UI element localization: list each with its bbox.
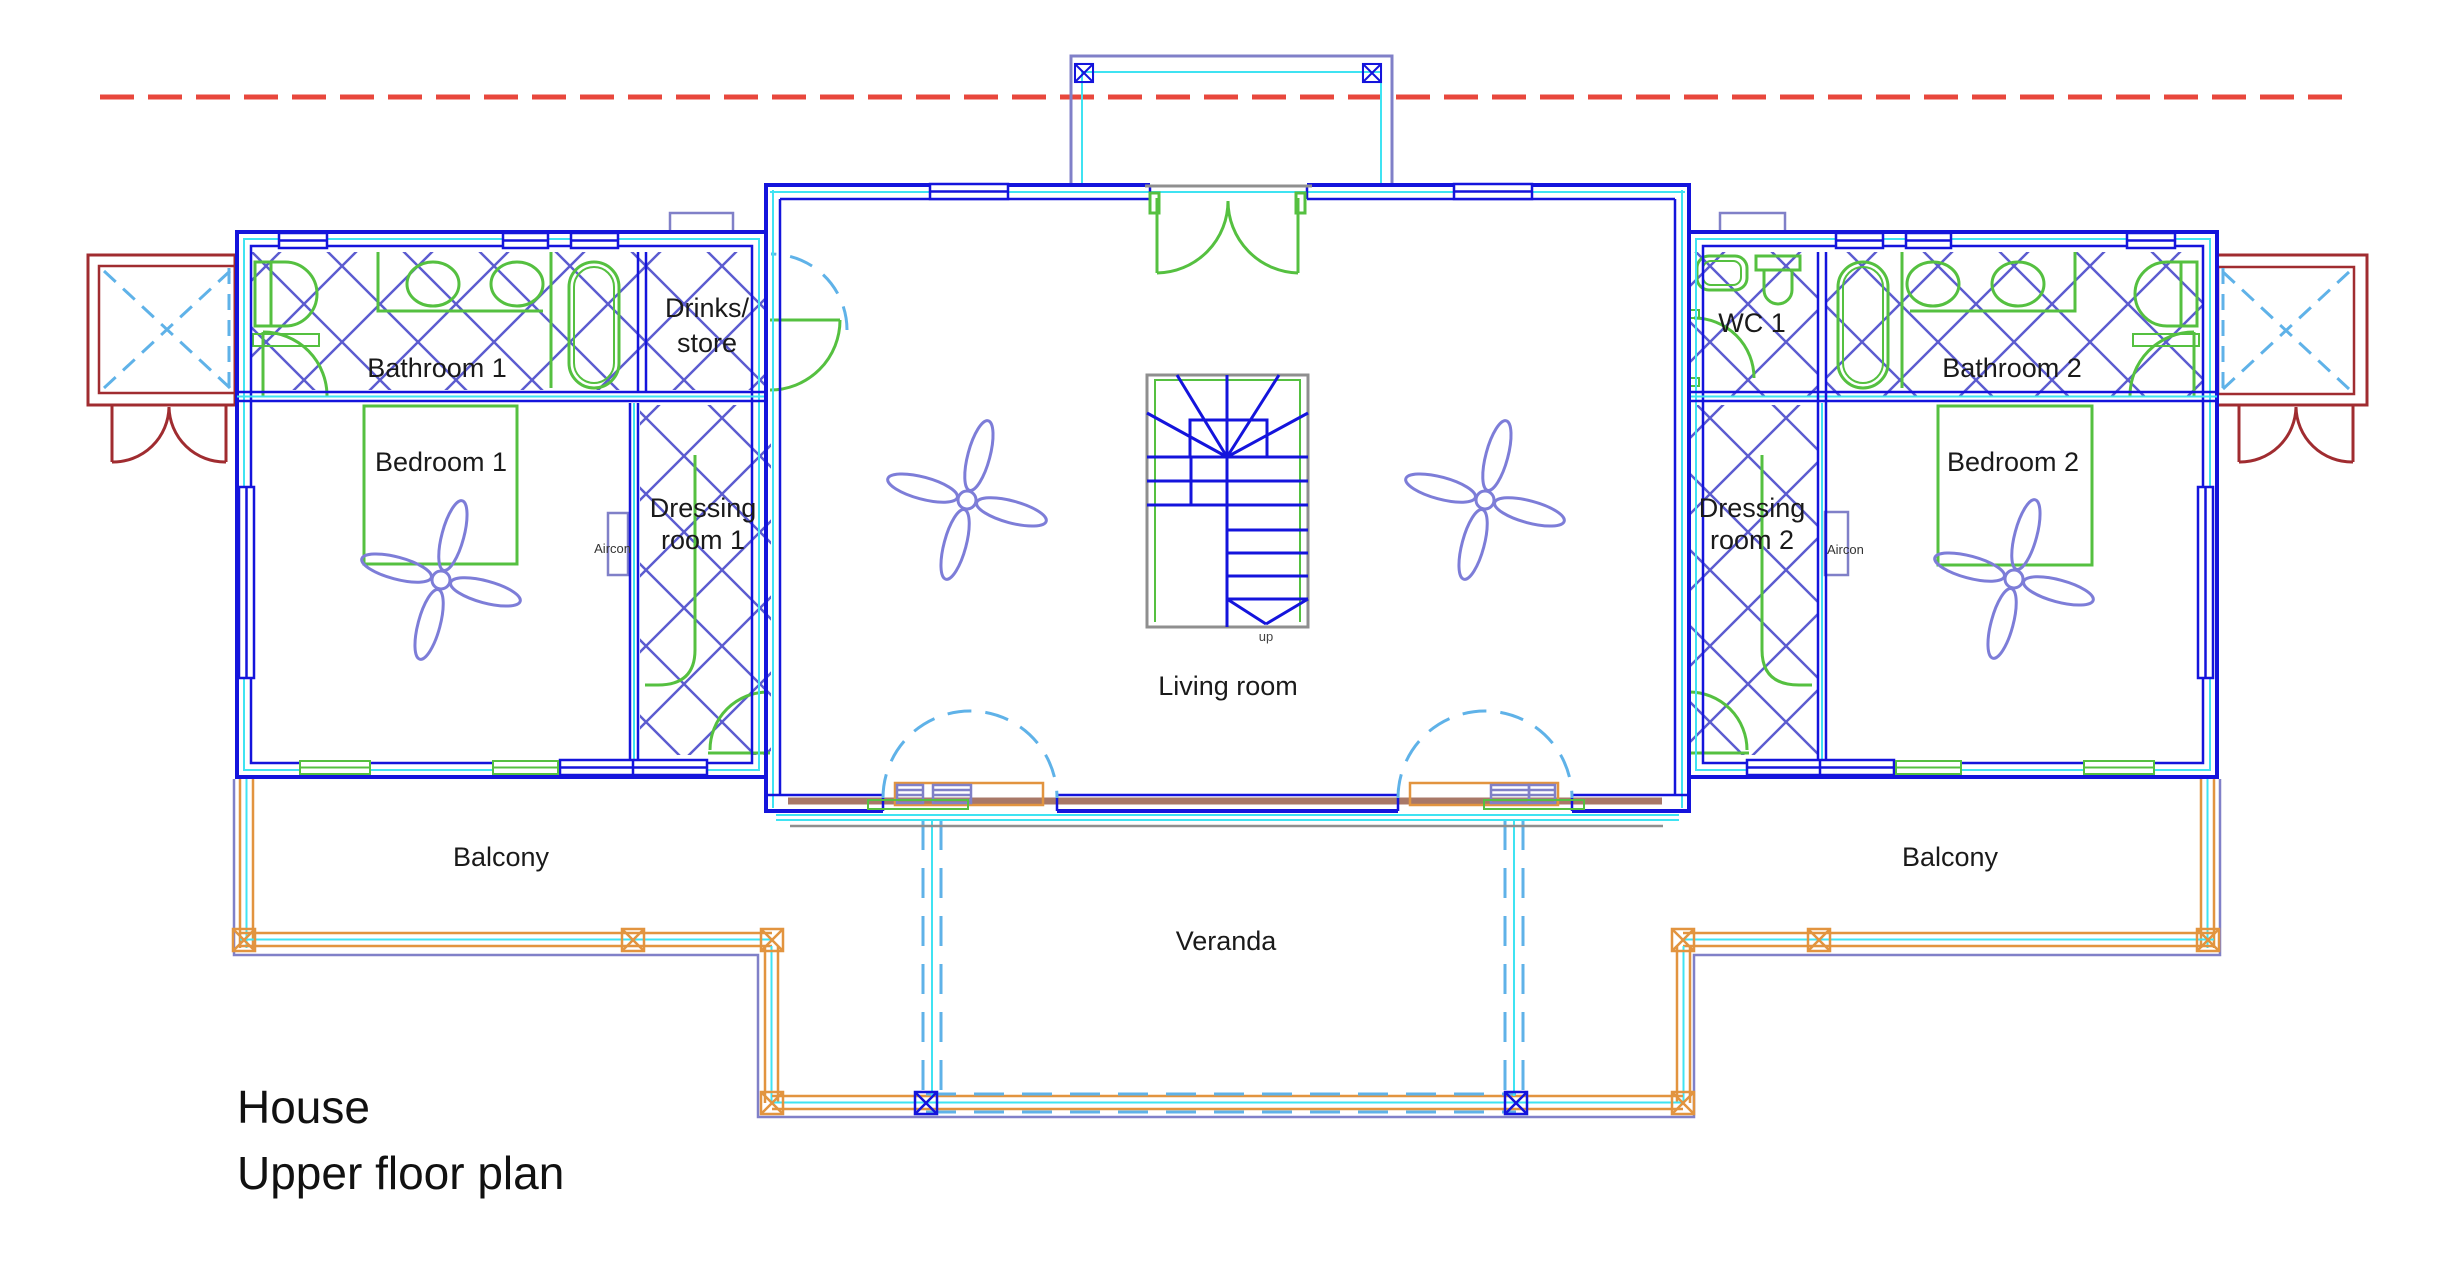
window <box>2084 761 2154 774</box>
window <box>1836 233 1883 248</box>
window <box>2198 487 2213 678</box>
label-drinks-store-line2: store <box>677 328 737 358</box>
porch-floor-x <box>2223 268 2349 392</box>
right-porch <box>2217 255 2367 462</box>
porch-double-door-icon <box>2239 405 2353 462</box>
window <box>300 761 370 774</box>
railing-posts <box>233 929 2219 1114</box>
label-bathroom-2: Bathroom 2 <box>1942 353 2082 383</box>
veranda-walkway-left <box>923 820 941 1096</box>
label-balcony-right: Balcony <box>1902 842 1999 872</box>
window <box>930 184 1008 199</box>
window <box>239 487 254 678</box>
window <box>503 233 548 248</box>
floor-plan-canvas: up Bathroom 1 Drinks/ store WC 1 Bathroo… <box>0 0 2452 1288</box>
wall-recess <box>670 213 733 232</box>
veranda-walkway-right <box>1505 820 1523 1096</box>
dressing2-tiles <box>1689 405 1818 755</box>
veranda-railing <box>765 946 1690 1112</box>
label-dressing-2-line1: Dressing <box>1699 493 1806 523</box>
label-dressing-2-line2: room 2 <box>1710 525 1794 555</box>
window <box>493 761 558 774</box>
porch-floor-x <box>104 268 230 392</box>
label-balcony-left: Balcony <box>453 842 550 872</box>
window <box>2127 233 2175 248</box>
entry-porch <box>1071 56 1392 188</box>
window <box>560 760 707 775</box>
label-veranda: Veranda <box>1176 926 1278 956</box>
label-bedroom-1: Bedroom 1 <box>375 447 507 477</box>
label-drinks-store-line1: Drinks/ <box>665 293 750 323</box>
stairs-up-label: up <box>1259 629 1273 644</box>
drawing-title: House Upper floor plan <box>237 1081 564 1199</box>
window <box>1896 761 1961 774</box>
label-aircon-left: Aircon <box>594 541 631 556</box>
label-wc-1: WC 1 <box>1718 308 1786 338</box>
window <box>1906 233 1951 248</box>
title-line-1: House <box>237 1081 370 1133</box>
label-aircon-right: Aircon <box>1827 542 1864 557</box>
window <box>1747 760 1894 775</box>
window <box>279 233 327 248</box>
label-bedroom-2: Bedroom 2 <box>1947 447 2079 477</box>
title-line-2: Upper floor plan <box>237 1147 564 1199</box>
terrace-edge <box>776 815 1679 826</box>
wall-recess <box>1720 213 1785 232</box>
window <box>571 233 618 248</box>
left-porch <box>88 255 235 462</box>
label-dressing-1-line1: Dressing <box>650 493 757 523</box>
porch-double-door-icon <box>112 405 226 462</box>
label-bathroom-1: Bathroom 1 <box>367 353 507 383</box>
label-living-room: Living room <box>1158 671 1298 701</box>
window <box>1454 184 1532 199</box>
floor-plan-page: up Bathroom 1 Drinks/ store WC 1 Bathroo… <box>0 0 2452 1288</box>
label-dressing-1-line2: room 1 <box>661 525 745 555</box>
